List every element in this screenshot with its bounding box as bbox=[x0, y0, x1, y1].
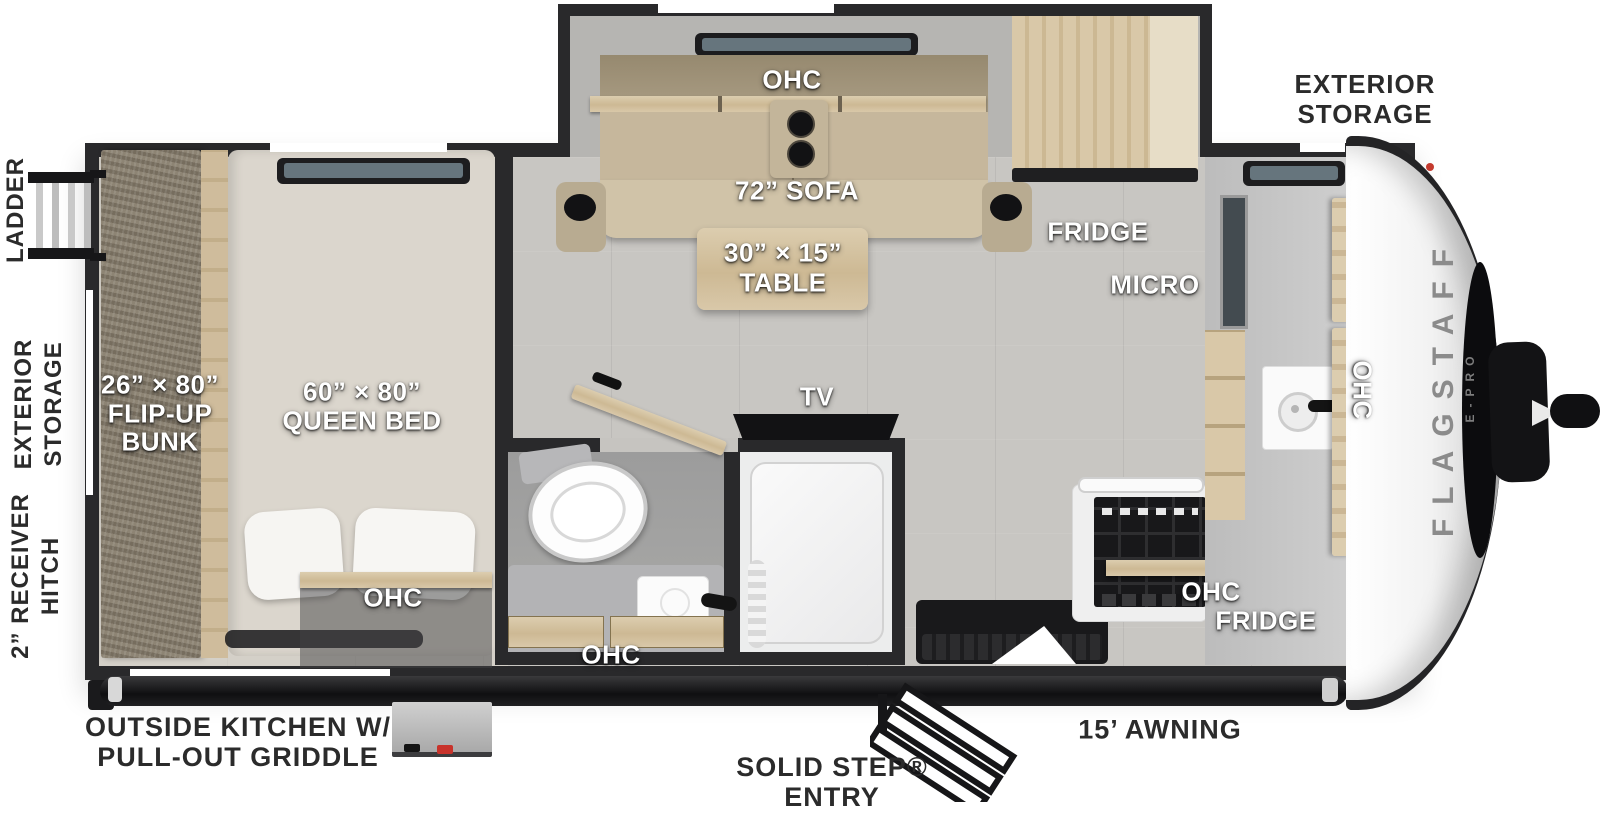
table-size-label: 30” × 15” bbox=[724, 238, 842, 269]
slideout-window-gap bbox=[658, 4, 834, 13]
griddle-knob-icon bbox=[404, 744, 420, 752]
entry-line: ENTRY bbox=[736, 782, 927, 812]
queen-size-label: 60” × 80” bbox=[303, 377, 421, 408]
cupholder-icon bbox=[564, 194, 596, 221]
tv bbox=[733, 414, 899, 440]
shower-pan bbox=[750, 462, 884, 644]
table-label: TABLE bbox=[739, 268, 826, 299]
outside-kitchen-label: OUTSIDE KITCHEN W/ PULL-OUT GRIDDLE bbox=[85, 712, 391, 772]
rear-storage-line: STORAGE bbox=[39, 339, 69, 470]
console-cupholder-icon bbox=[787, 140, 815, 168]
kitchen-sink-bowl bbox=[1278, 392, 1318, 432]
awning-label: 15’ AWNING bbox=[1078, 715, 1242, 746]
outside-kitchen-line: OUTSIDE KITCHEN W/ bbox=[85, 712, 391, 742]
kitchen-fridge-label: FRIDGE bbox=[1215, 606, 1316, 637]
rear-storage-line: EXTERIOR bbox=[9, 339, 39, 470]
cooktop-knobs bbox=[1102, 508, 1198, 515]
tv-label: TV bbox=[800, 382, 834, 413]
ladder-icon bbox=[28, 168, 108, 264]
front-storage-line: STORAGE bbox=[1295, 99, 1436, 129]
bedroom-window-gap bbox=[270, 143, 447, 152]
bunk-label: BUNK bbox=[121, 427, 198, 458]
hitch-line: HITCH bbox=[36, 493, 66, 659]
hitch-line: 2” RECEIVER bbox=[6, 493, 36, 659]
sofa-ohc-shelf-gap bbox=[838, 96, 842, 112]
cupholder-icon bbox=[990, 194, 1022, 221]
front-window-gap bbox=[1300, 143, 1345, 152]
rear-storage-label: EXTERIOR STORAGE bbox=[9, 339, 69, 470]
kitchen-sink-drain bbox=[1291, 405, 1299, 413]
brand-model: FLAGSTAFF bbox=[1427, 235, 1461, 537]
outside-kitchen-line: PULL-OUT GRIDDLE bbox=[85, 742, 391, 772]
brand-series: E-PRO bbox=[1463, 235, 1477, 537]
awning-roller bbox=[100, 676, 1348, 706]
front-kitchen-window-glass bbox=[1250, 166, 1338, 180]
bunk-size-label: 26” × 80” bbox=[101, 370, 219, 401]
ladder-label: LADDER bbox=[2, 157, 30, 263]
awning-bracket-icon bbox=[108, 677, 122, 702]
front-storage-label: EXTERIOR STORAGE bbox=[1295, 69, 1436, 129]
griddle-handle-icon bbox=[437, 745, 453, 754]
pantry-cabinet bbox=[1205, 330, 1245, 520]
bathroom-sink-bowl bbox=[660, 588, 690, 618]
front-storage-line: EXTERIOR bbox=[1295, 69, 1436, 99]
console-cupholder-icon bbox=[787, 110, 815, 138]
rear-storage-door-gap bbox=[86, 290, 93, 495]
shower-hose-icon bbox=[748, 560, 766, 648]
queen-label: QUEEN BED bbox=[282, 406, 441, 437]
entry-line: SOLID STEP® bbox=[736, 752, 927, 782]
bedroom-window-glass bbox=[284, 163, 463, 178]
micro-label: MICRO bbox=[1110, 270, 1199, 301]
cabinet-shadow bbox=[1012, 168, 1198, 182]
entry-label: SOLID STEP® ENTRY bbox=[736, 752, 927, 812]
bedroom-ohc-label: OHC bbox=[363, 583, 422, 614]
front-wall-window bbox=[1220, 195, 1248, 329]
marker-light-icon bbox=[1426, 163, 1434, 171]
slideout-cabinet-face bbox=[1150, 16, 1198, 176]
sofa-label: 72” SOFA bbox=[735, 176, 859, 207]
slideout-window-glass bbox=[702, 38, 911, 51]
receiver-hitch-label: 2” RECEIVER HITCH bbox=[6, 493, 66, 659]
bathroom-ohc-label: OHC bbox=[581, 640, 640, 671]
brand-logo: FLAGSTAFF E-PRO bbox=[1427, 235, 1477, 537]
rv-floorplan: FLAGSTAFF E-PRO 26” × 80” FLIP-UP BUNK 6… bbox=[0, 0, 1600, 813]
front-ohc-label: OHC bbox=[1347, 360, 1378, 419]
awning-bracket-icon bbox=[1322, 678, 1338, 702]
sofa-ohc-shelf-gap bbox=[718, 96, 722, 112]
stove-handle-icon bbox=[1078, 477, 1204, 493]
kitchen-ohc-label: OHC bbox=[1181, 577, 1240, 608]
bunk-label: FLIP-UP bbox=[108, 399, 213, 430]
sofa-ohc-label: OHC bbox=[762, 65, 821, 96]
tongue-jack bbox=[1550, 394, 1600, 428]
fridge-label: FRIDGE bbox=[1047, 217, 1148, 248]
